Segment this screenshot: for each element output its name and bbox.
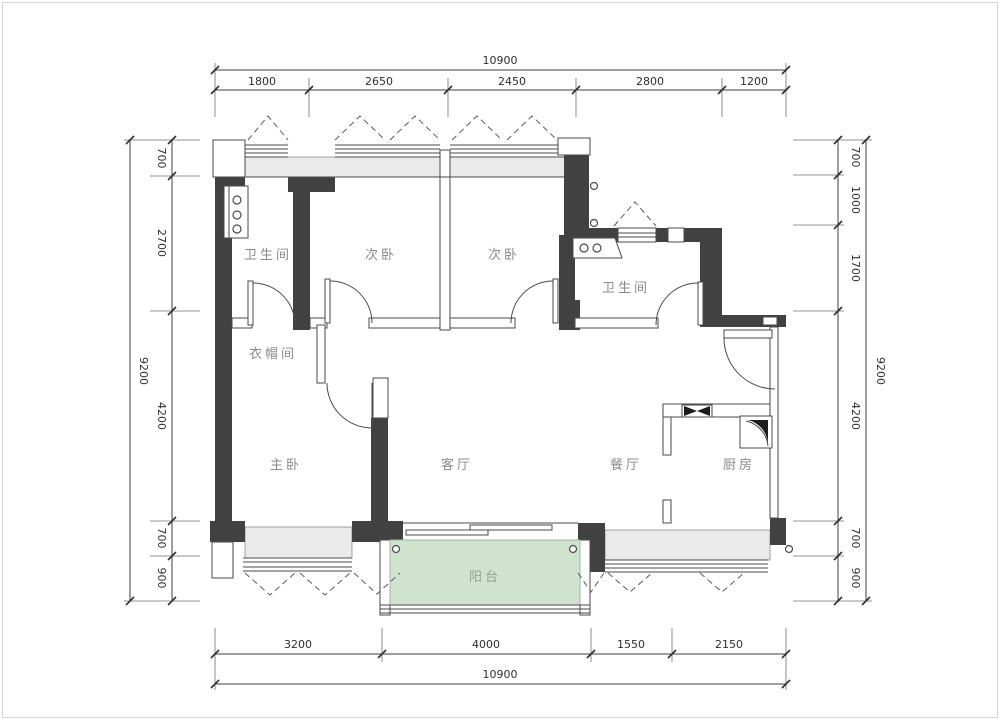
floor-plan-page: 10900 1800 2650 2450 2800 1200 bbox=[0, 0, 1000, 720]
label-living: 客厅 bbox=[441, 457, 473, 472]
dim-left-total: 9200 bbox=[137, 357, 150, 385]
kitchen-corner-sink bbox=[740, 416, 772, 448]
drain-pipe bbox=[393, 546, 400, 553]
dim-right-seg-2: 1000 bbox=[849, 186, 862, 214]
drain-pipe bbox=[786, 546, 793, 553]
dim-right-seg-5: 700 bbox=[849, 528, 862, 549]
vanity-bath2 bbox=[573, 238, 622, 258]
label-master: 主卧 bbox=[270, 457, 302, 472]
dim-right-seg-3: 1700 bbox=[849, 254, 862, 282]
window-dining-bottom bbox=[605, 560, 768, 572]
dim-right-seg-6: 900 bbox=[849, 568, 862, 589]
dim-bottom-seg-1: 3200 bbox=[284, 638, 312, 651]
label-bath2: 卫生间 bbox=[602, 280, 650, 295]
dim-bottom: 3200 4000 1550 2150 10900 bbox=[211, 628, 790, 690]
drain-pipe bbox=[591, 220, 598, 227]
dim-top-total: 10900 bbox=[483, 54, 518, 67]
dim-top-seg-5: 1200 bbox=[740, 75, 768, 88]
window-top-bed-a bbox=[335, 145, 440, 157]
dim-left-seg-3: 4200 bbox=[155, 402, 168, 430]
window-bath2-top bbox=[618, 228, 684, 242]
door-bath1 bbox=[248, 281, 295, 325]
window-top-bed-b bbox=[450, 145, 564, 157]
dim-top: 10900 1800 2650 2450 2800 1200 bbox=[211, 54, 790, 117]
basin-bath1 bbox=[224, 186, 248, 238]
walls-structural bbox=[210, 155, 786, 572]
drain-pipe bbox=[591, 183, 598, 190]
dim-top-seg-3: 2450 bbox=[498, 75, 526, 88]
label-bed-a: 次卧 bbox=[365, 247, 397, 262]
door-bed-b bbox=[511, 279, 558, 323]
dim-left-seg-5: 900 bbox=[155, 568, 168, 589]
label-dining: 餐厅 bbox=[610, 457, 642, 472]
label-bed-b: 次卧 bbox=[488, 247, 520, 262]
door-bed-a bbox=[325, 279, 372, 323]
door-entry bbox=[724, 330, 775, 389]
dim-right-seg-4: 4200 bbox=[849, 402, 862, 430]
dim-bottom-seg-3: 1550 bbox=[617, 638, 645, 651]
dim-bottom-total: 10900 bbox=[483, 668, 518, 681]
label-bath1: 卫生间 bbox=[244, 247, 292, 262]
dim-left-seg-4: 700 bbox=[155, 528, 168, 549]
window-master-bottom bbox=[243, 558, 352, 571]
label-balcony: 阳台 bbox=[469, 569, 501, 584]
dim-top-seg-1: 1800 bbox=[248, 75, 276, 88]
dim-top-seg-2: 2650 bbox=[365, 75, 393, 88]
dim-right-total: 9200 bbox=[874, 357, 887, 385]
drain-pipe bbox=[570, 546, 577, 553]
dim-right: 700 1000 1700 4200 700 900 9200 bbox=[793, 136, 887, 605]
dim-left-seg-2: 2700 bbox=[155, 229, 168, 257]
door-bath2 bbox=[656, 282, 703, 325]
dim-left-seg-1: 700 bbox=[155, 148, 168, 169]
dim-left: 9200 700 2700 4200 700 900 bbox=[124, 136, 200, 605]
dim-top-seg-4: 2800 bbox=[636, 75, 664, 88]
label-cloak: 衣帽间 bbox=[249, 346, 297, 361]
dim-bottom-seg-4: 2150 bbox=[715, 638, 743, 651]
door-master-suite bbox=[327, 383, 372, 428]
floor-plan-drawing: 10900 1800 2650 2450 2800 1200 bbox=[0, 0, 1000, 720]
dim-right-seg-1: 700 bbox=[849, 147, 862, 168]
sliding-door-balcony bbox=[403, 523, 578, 535]
window-top-bath1 bbox=[245, 145, 288, 157]
flue-shaft bbox=[682, 405, 712, 417]
label-kitchen: 厨房 bbox=[723, 457, 755, 472]
dim-bottom-seg-2: 4000 bbox=[472, 638, 500, 651]
